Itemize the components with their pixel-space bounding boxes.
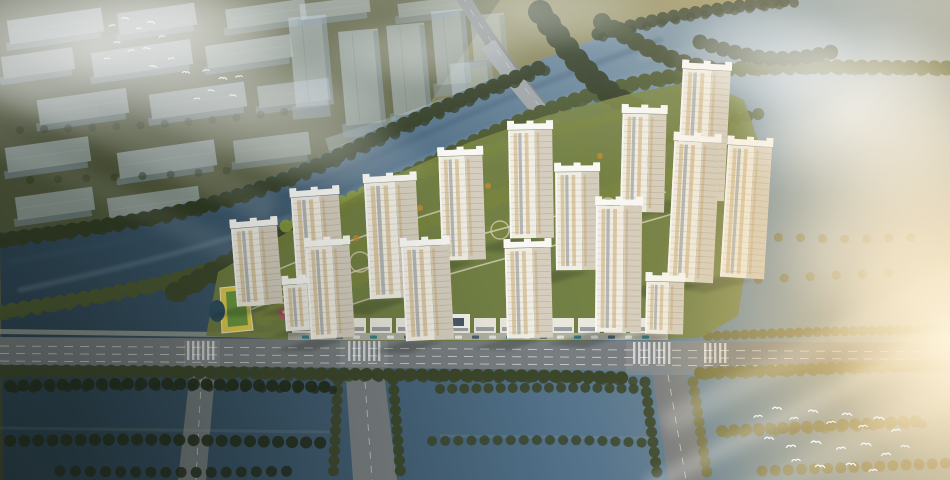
layer-atmosphere [0, 0, 950, 480]
vignette [0, 0, 950, 480]
aerial-render [0, 0, 950, 480]
scene-svg [0, 0, 950, 480]
